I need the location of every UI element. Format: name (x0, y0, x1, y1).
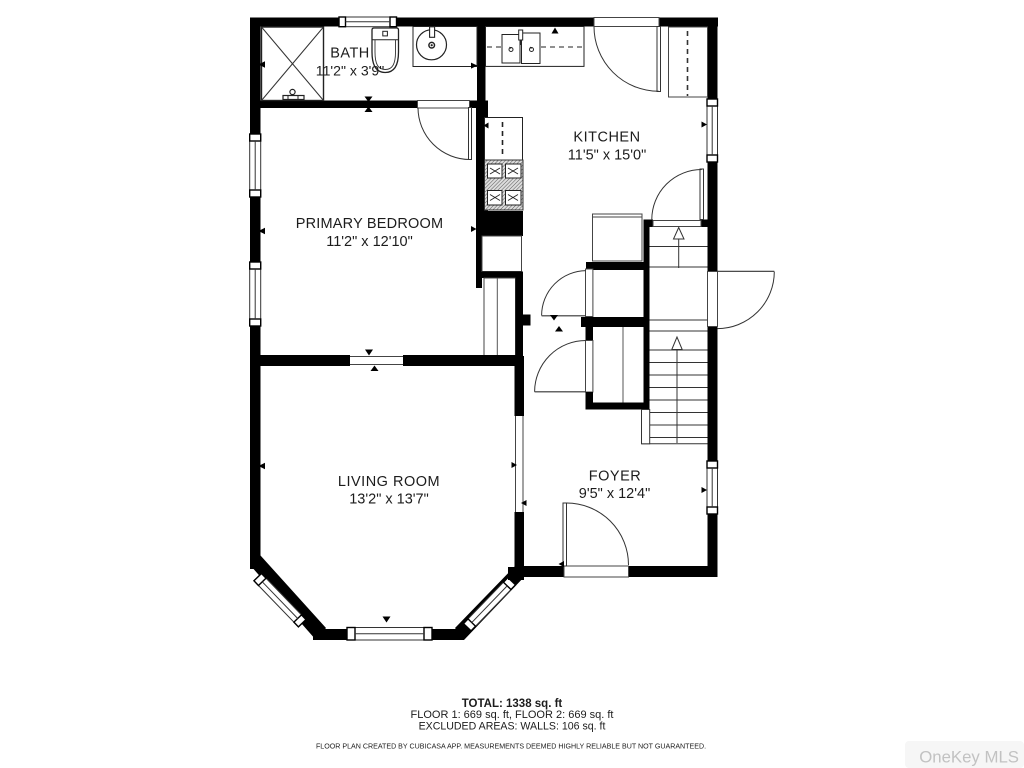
svg-text:FOYER: FOYER (589, 469, 641, 485)
svg-text:11'5" x 15'0": 11'5" x 15'0" (568, 148, 646, 164)
svg-text:PRIMARY BEDROOM: PRIMARY BEDROOM (296, 216, 444, 232)
svg-text:LIVING ROOM: LIVING ROOM (338, 474, 440, 490)
svg-text:BATH: BATH (330, 46, 370, 62)
svg-text:EXCLUDED AREAS: WALLS: 106 sq.: EXCLUDED AREAS: WALLS: 106 sq. ft (419, 721, 606, 733)
svg-text:KITCHEN: KITCHEN (573, 130, 640, 146)
svg-text:OneKey MLS: OneKey MLS (919, 748, 1019, 767)
svg-text:11'2" x 3'9": 11'2" x 3'9" (316, 63, 384, 79)
svg-text:13'2" x 13'7": 13'2" x 13'7" (349, 492, 429, 508)
svg-text:FLOOR 1: 669 sq. ft, FLOOR 2:: FLOOR 1: 669 sq. ft, FLOOR 2: 669 sq. ft (411, 709, 614, 721)
svg-text:9'5" x 12'4": 9'5" x 12'4" (579, 486, 650, 502)
svg-text:FLOOR PLAN CREATED BY CUBICASA: FLOOR PLAN CREATED BY CUBICASA APP. MEAS… (316, 743, 706, 751)
svg-text:11'2" x 12'10": 11'2" x 12'10" (326, 234, 413, 250)
